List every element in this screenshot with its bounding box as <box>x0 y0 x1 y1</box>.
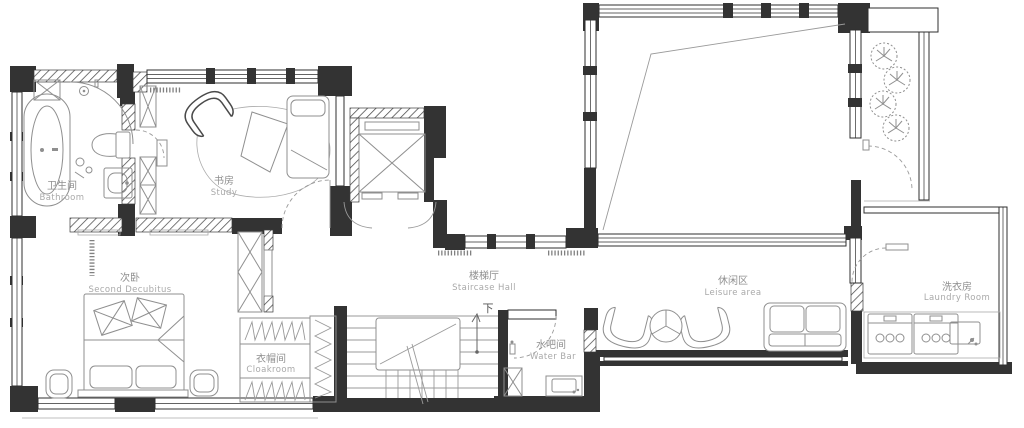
laundry-top-window <box>864 207 1002 213</box>
headboard <box>78 390 188 397</box>
label-stairs-down: 下 <box>483 302 494 315</box>
svg-text:Cloakroom: Cloakroom <box>246 365 295 375</box>
svg-text:楼梯厅: 楼梯厅 <box>469 269 499 282</box>
bedroom-door-leaf <box>264 250 272 296</box>
double-bed <box>78 294 188 397</box>
svg-text:水吧间: 水吧间 <box>536 338 566 351</box>
svg-text:Bathroom: Bathroom <box>40 193 85 203</box>
floor-plan-drawing: 卫生间Bathroom 书房Study 次卧Second Decubitus 衣… <box>0 0 1024 428</box>
elevator-door-right <box>398 193 418 199</box>
daybed <box>287 96 329 178</box>
bedroom-cabinet <box>238 232 262 312</box>
laundry-door-leaf <box>886 244 908 250</box>
svg-text:卫生间: 卫生间 <box>47 179 77 192</box>
svg-text:书房: 书房 <box>214 174 234 187</box>
svg-text:Study: Study <box>211 188 238 198</box>
leisure-bottom-rail-gap <box>604 357 842 361</box>
big-room-bottom-window <box>598 234 846 246</box>
svg-text:次卧: 次卧 <box>120 271 140 284</box>
bedroom-left-window <box>12 238 22 386</box>
svg-text:休闲区: 休闲区 <box>718 274 748 287</box>
svg-text:衣帽间: 衣帽间 <box>256 352 286 365</box>
water-bar-top-wall <box>508 310 556 319</box>
svg-text:Staircase Hall: Staircase Hall <box>452 283 516 293</box>
bathroom-left-window <box>12 92 22 216</box>
label-study: 书房Study <box>211 174 238 198</box>
sofa <box>764 303 846 351</box>
study-top-window <box>147 68 318 84</box>
svg-text:Laundry Room: Laundry Room <box>924 293 990 303</box>
big-room-top-window <box>599 3 838 18</box>
svg-text:洗衣房: 洗衣房 <box>942 280 972 293</box>
big-room-left-window <box>583 20 597 168</box>
floor-plan: 卫生间Bathroom 书房Study 次卧Second Decubitus 衣… <box>0 0 1024 428</box>
pillow <box>90 366 132 388</box>
balcony-door-leaf <box>863 140 869 150</box>
side-table <box>650 310 682 342</box>
hall-north-window <box>465 234 566 249</box>
balcony-top-ledge <box>868 8 938 32</box>
svg-text:Leisure area: Leisure area <box>705 288 762 298</box>
balcony-right-window <box>919 30 929 200</box>
svg-text:Second Decubitus: Second Decubitus <box>88 285 171 295</box>
big-room-right-window <box>848 30 862 138</box>
bedroom-bottom-windows <box>38 398 313 409</box>
svg-text:Water Bar: Water Bar <box>530 352 576 362</box>
elevator-door-left <box>362 193 382 199</box>
pillow <box>136 366 176 388</box>
study-right-wall <box>336 96 344 186</box>
